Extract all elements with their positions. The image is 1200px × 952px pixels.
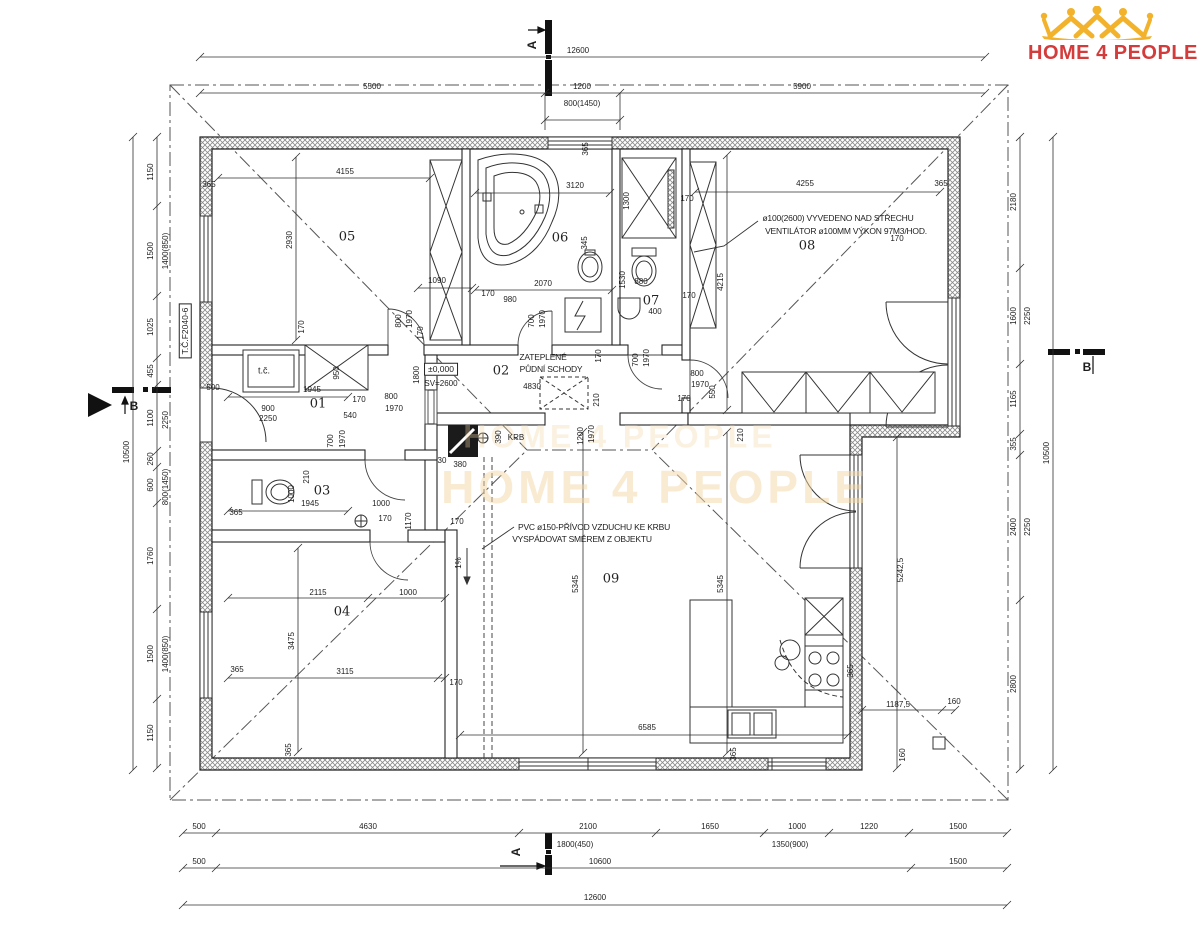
window-left-1: [200, 216, 212, 302]
window-left-2: [200, 612, 212, 698]
crown-icon: [1022, 6, 1172, 40]
heat-pump-unit: [243, 350, 299, 392]
entry-arrow: [88, 393, 112, 417]
slope-arrow: [464, 548, 470, 584]
wardrobe-room05: [430, 160, 462, 340]
washbasin-bath: [578, 250, 602, 282]
entry-door-arc: [212, 388, 266, 442]
logo-word-home: HOME: [1028, 42, 1090, 64]
french-door-right: [948, 298, 960, 426]
entry-door-opening: [200, 388, 212, 442]
attic-stairs: [540, 377, 588, 409]
section-a-top-bar: [545, 20, 552, 54]
washing-machine: [565, 298, 601, 332]
furniture: [243, 154, 935, 527]
section-a-bottom-bar: [545, 833, 552, 849]
section-b-left-bar: [112, 387, 134, 393]
logo-word-people: PEOPLE: [1114, 42, 1198, 64]
floorplan-canvas: HOME 4 PEOPLE HOME 4 PEOPLE 010203040506…: [0, 0, 1200, 952]
toilet-03: [252, 480, 294, 504]
wardrobe-08-left: [690, 162, 716, 328]
logo-word-4: 4: [1096, 42, 1108, 64]
floorplan-drawing: [0, 0, 1200, 952]
logo-text: HOME 4 PEOPLE: [1028, 42, 1198, 65]
washbasin-07: [618, 298, 640, 319]
closet-above-wc: [622, 158, 676, 238]
window-bottom-kitchen: [768, 758, 826, 770]
closet-01: [305, 345, 368, 390]
kitchen: [690, 598, 945, 749]
wardrobe-08-bottom: [742, 372, 935, 413]
window-top: [548, 137, 612, 149]
section-b-right-bar: [1048, 349, 1070, 355]
dimension-chains: [129, 53, 1057, 909]
extension-lines: [545, 93, 620, 130]
logo: HOME 4 PEOPLE: [1022, 6, 1192, 64]
toilet-07: [632, 248, 656, 286]
bathtub: [478, 154, 559, 265]
